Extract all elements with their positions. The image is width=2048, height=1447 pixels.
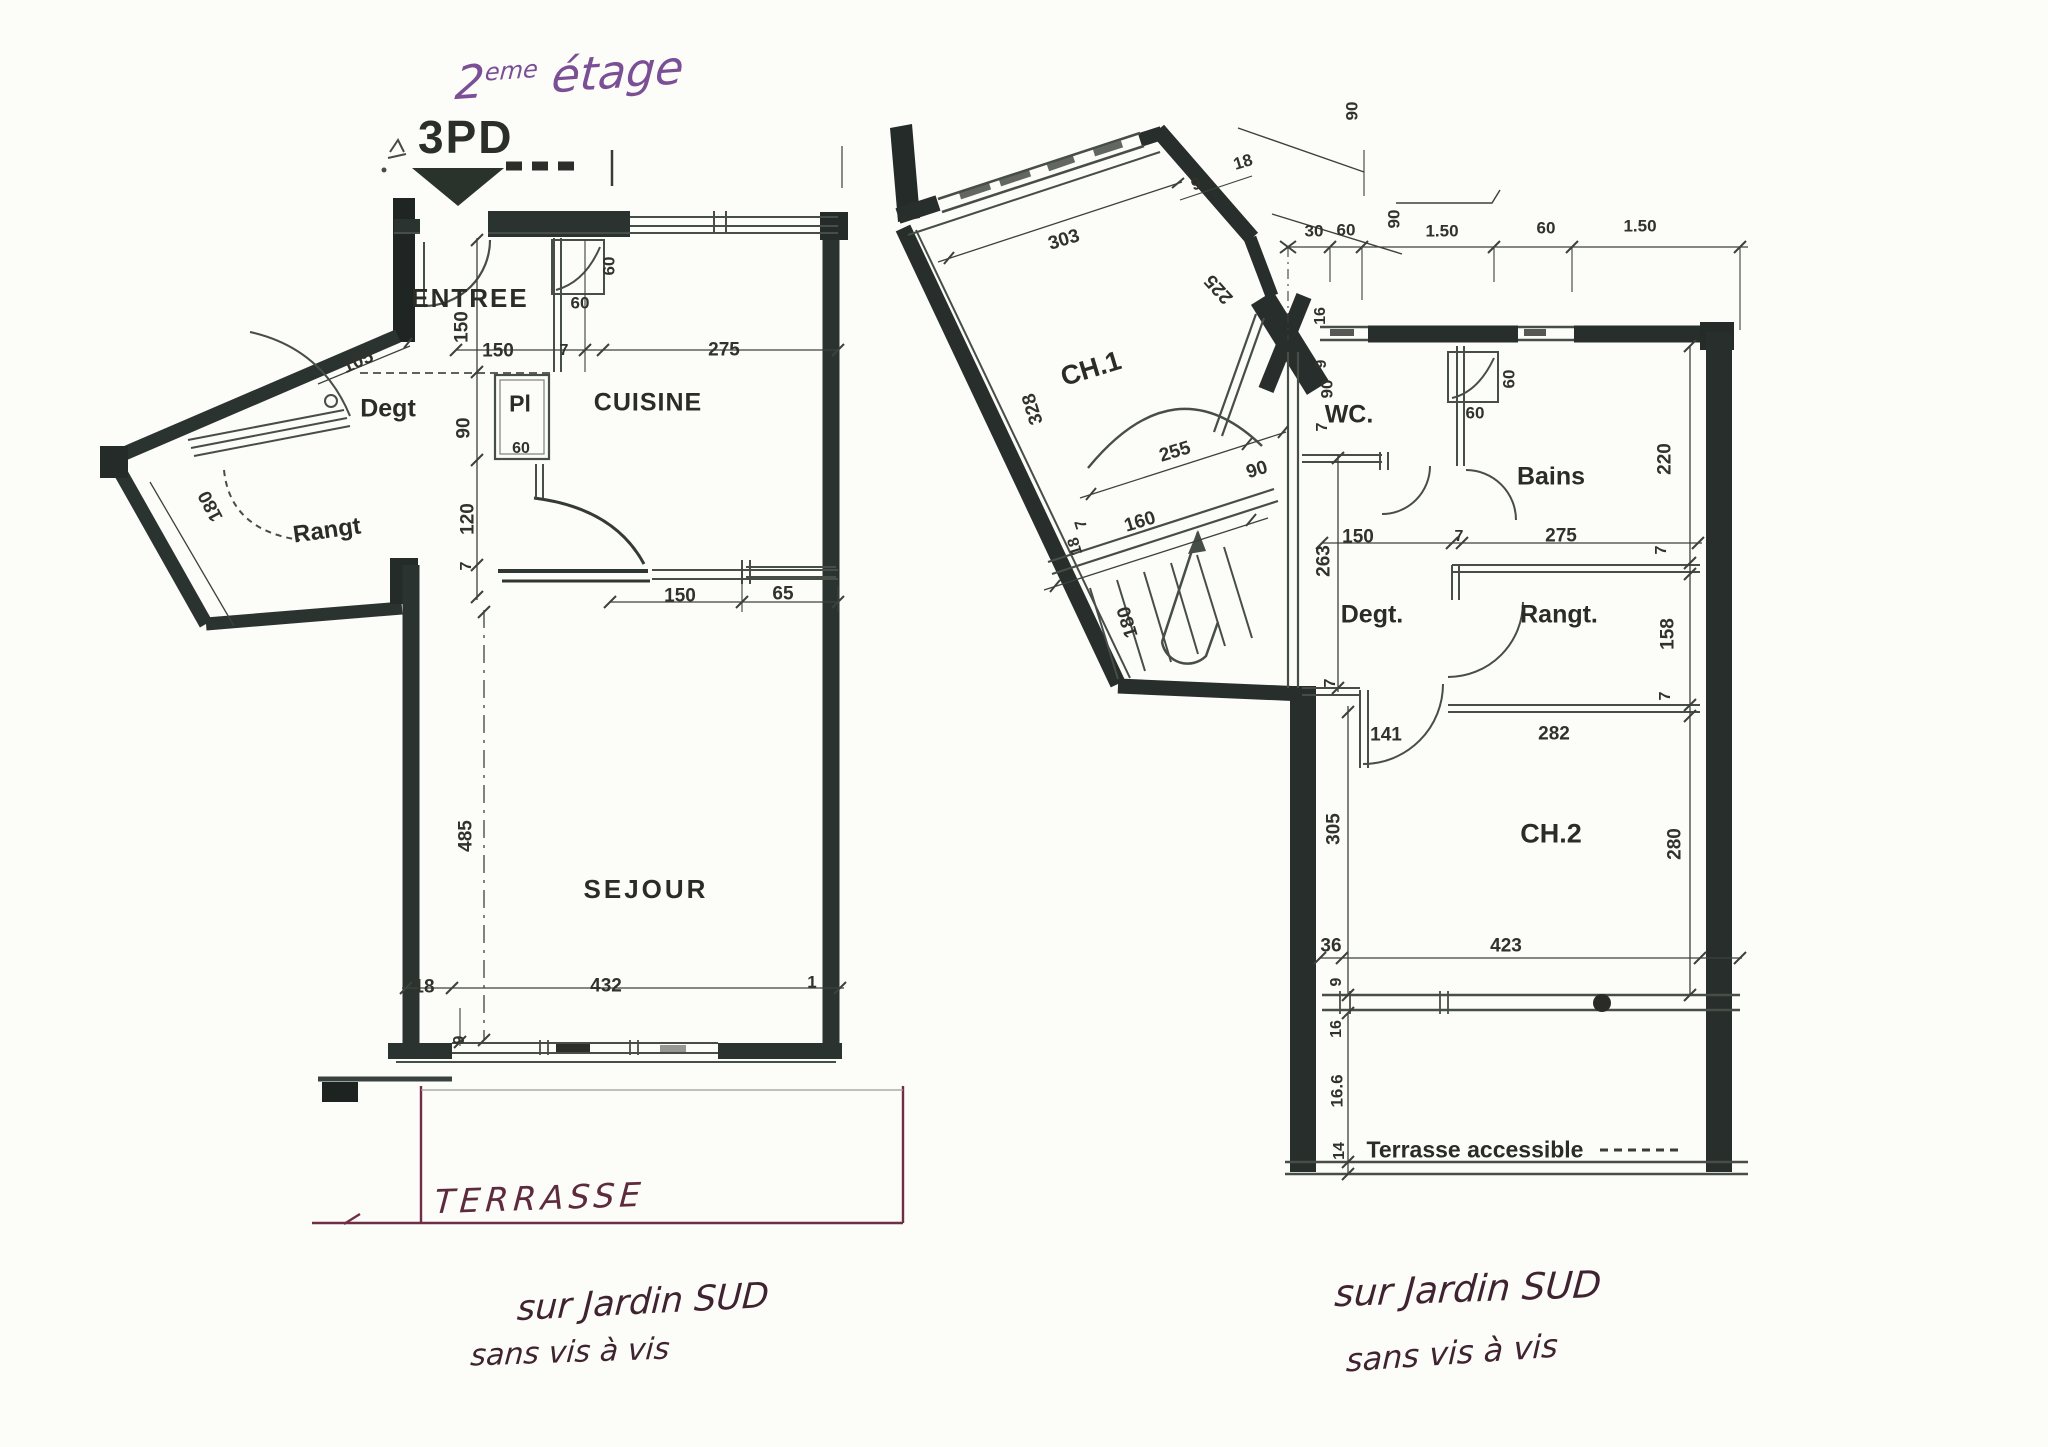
dimension-label: 7: [560, 343, 569, 359]
dimension-label: 105: [340, 347, 377, 377]
right-note-line2: sans vis à vis: [1346, 1330, 1559, 1377]
dimension-label: 60: [512, 441, 530, 457]
dimension-label: 282: [1538, 725, 1570, 744]
dimension-label: 275: [1545, 527, 1577, 546]
dimension-label: 180: [1114, 604, 1141, 640]
dimension-label: 18: [1231, 151, 1254, 173]
dimension-label: 150: [1342, 528, 1374, 547]
room-label-sejour: SEJOUR: [584, 876, 709, 902]
dimension-label: 1: [807, 974, 816, 991]
room-label-placard: Pl: [509, 393, 531, 416]
dimension-label: 150: [664, 587, 696, 606]
dimension-label: 275: [708, 341, 740, 360]
dimension-label: 158: [1659, 618, 1678, 650]
dimension-label: 16: [1329, 1020, 1345, 1038]
dimension-label: 7: [1658, 692, 1674, 701]
terrasse-handwritten-label: TERRASSE: [433, 1178, 646, 1218]
dimension-label: 9: [1189, 174, 1203, 193]
dimension-label: 280: [1666, 828, 1685, 860]
dimension-label: 432: [590, 977, 622, 996]
dimension-label: 263: [1315, 545, 1334, 577]
room-label-degagement-2: Degt.: [1341, 603, 1404, 628]
dimension-label: 7: [459, 562, 475, 571]
dimension-label: 1.50: [1623, 218, 1656, 235]
dimension-label: 150: [453, 311, 472, 343]
dimension-label: 90: [1244, 458, 1270, 482]
plan-type-code: 3PD: [418, 110, 513, 164]
dimension-label: 16.6: [1329, 1074, 1346, 1107]
dimension-label: 30: [1305, 223, 1324, 240]
dimension-label: 7: [1315, 423, 1331, 432]
dimension-label: 255: [1157, 438, 1193, 465]
dimension-label: 9: [1329, 978, 1345, 987]
room-label-ch1: CH.1: [1058, 347, 1125, 391]
room-label-cuisine: CUISINE: [594, 391, 702, 416]
dimension-label: 150: [482, 342, 514, 361]
dimension-label: 180: [195, 488, 227, 525]
dimension-label: 7: [1073, 517, 1091, 530]
dimension-label: 303: [1046, 226, 1082, 253]
dimension-label: 120: [459, 503, 478, 535]
scanned-floor-plan-page: ENTREEDegtRangtPlCUISINESEJOUR1507275105…: [0, 0, 2048, 1447]
dimension-label: 90: [1319, 380, 1336, 399]
dimension-label: 60: [1537, 220, 1556, 237]
room-label-entree: ENTREE: [411, 285, 528, 311]
room-label-bains: Bains: [1517, 465, 1585, 490]
dimension-label: 60: [1337, 222, 1356, 239]
plan-labels-layer: ENTREEDegtRangtPlCUISINESEJOUR1507275105…: [0, 0, 2048, 1447]
dimension-label: 1.50: [1425, 223, 1458, 240]
dimension-label: 7: [1455, 529, 1464, 545]
dimension-label: 225: [1201, 271, 1236, 307]
dimension-label: 220: [1656, 443, 1675, 475]
dimension-label: 9: [1314, 360, 1330, 369]
dimension-label: 485: [457, 820, 476, 852]
room-label-ch2: CH.2: [1520, 821, 1582, 848]
room-label-rangement: Rangt: [292, 514, 363, 547]
dimension-label: 90: [455, 417, 474, 438]
dimension-label: 14: [1332, 1142, 1348, 1160]
floor-word: étage: [550, 40, 686, 104]
dimension-label: 60: [601, 257, 618, 276]
dimension-label: 36: [1320, 937, 1341, 956]
dimension-label: 141: [1370, 726, 1402, 745]
dimension-label: 90: [1344, 102, 1361, 121]
left-note-line2: sans vis à vis: [469, 1334, 670, 1371]
dimension-label: 60: [1501, 370, 1518, 389]
dimension-label: 328: [1019, 391, 1046, 427]
right-note-line1: sur Jardin SUD: [1334, 1266, 1603, 1312]
dimension-label: 90: [1386, 210, 1403, 229]
dimension-label: 60: [1466, 405, 1485, 422]
dimension-label: 7: [1323, 679, 1339, 688]
dimension-label: 9: [452, 1036, 468, 1045]
room-label-terrasse-accessible: Terrasse accessible: [1367, 1139, 1584, 1162]
floor-ordinal: eme: [484, 55, 539, 87]
dimension-label: 65: [772, 585, 793, 604]
dimension-label: 18: [413, 978, 434, 997]
dimension-label: 305: [1325, 813, 1344, 845]
room-label-rangement-2: Rangt.: [1520, 603, 1598, 628]
dimension-label: 16: [1313, 307, 1329, 325]
room-label-degagement: Degt: [360, 397, 416, 422]
floor-number: 2: [453, 54, 486, 110]
dimension-label: 423: [1490, 937, 1522, 956]
dimension-label: 160: [1122, 508, 1158, 535]
left-note-line1: sur Jardin SUD: [516, 1279, 770, 1327]
dimension-label: 18: [1066, 535, 1087, 557]
room-label-wc: WC.: [1325, 403, 1374, 428]
dimension-label: 7: [1654, 546, 1670, 555]
dimension-label: 60: [571, 295, 590, 312]
